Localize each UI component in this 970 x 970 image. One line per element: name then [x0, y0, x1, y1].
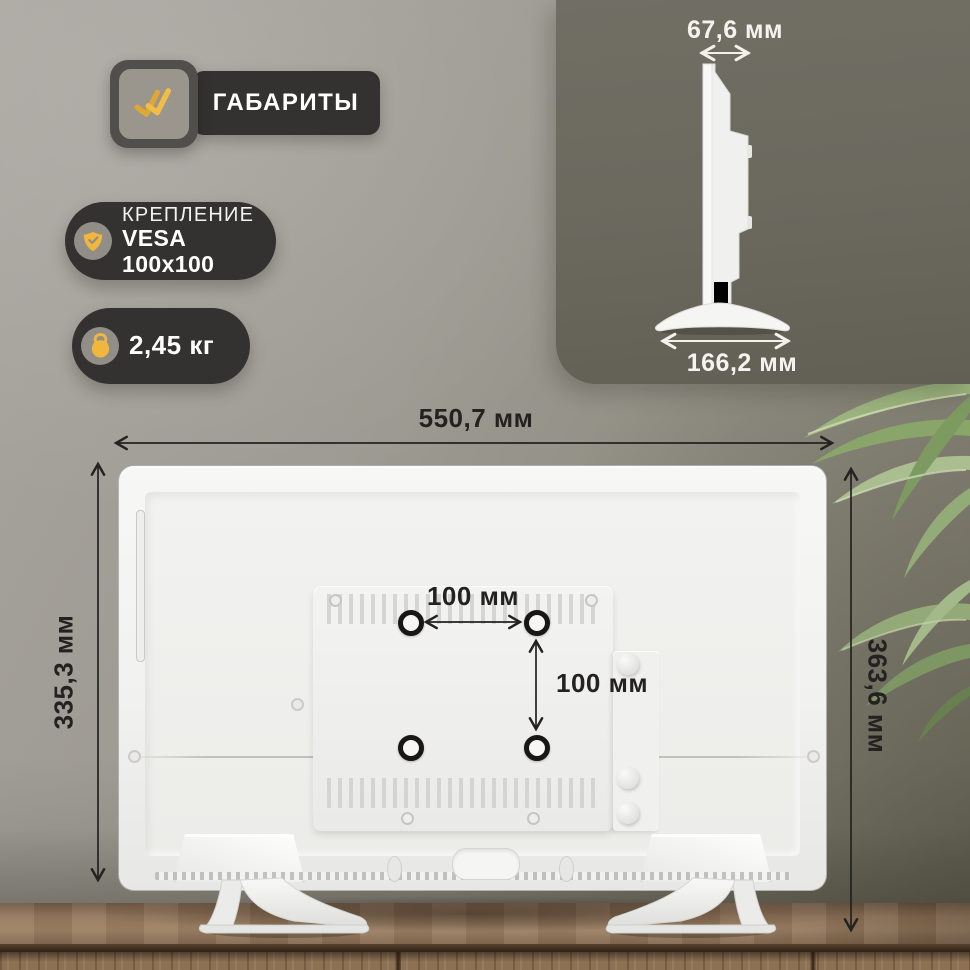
- height-dimension-label: 335,3 мм: [49, 615, 80, 730]
- mount-value: VESA 100x100: [122, 226, 276, 278]
- double-check-icon: [119, 69, 189, 139]
- vesa-badge: КРЕПЛЕНИЕ VESA 100x100: [65, 202, 276, 280]
- weight-badge: 2,45 кг: [72, 308, 250, 384]
- weight-value: 2,45 кг: [129, 331, 214, 360]
- dimensions-badge-label: ГАБАРИТЫ: [213, 89, 360, 117]
- dimensions-badge-labelbox: ГАБАРИТЫ: [192, 71, 380, 135]
- shield-check-icon: [74, 222, 112, 260]
- height-with-stand-dimension-label: 363,6 мм: [862, 639, 893, 754]
- tv-dimensions-infographic: 67,6 мм 166,2 мм ГАБАРИТЫ: [0, 0, 970, 970]
- mount-title: КРЕПЛЕНИЕ: [122, 204, 276, 226]
- tv-foot-right: [606, 878, 775, 938]
- tv-foot-left: [199, 878, 368, 938]
- dimensions-badge-icon-frame: [110, 60, 198, 148]
- vesa-width-label: 100 мм: [427, 581, 519, 612]
- kettlebell-icon: [81, 327, 119, 365]
- width-dimension-label: 550,7 мм: [419, 403, 534, 434]
- vesa-height-label: 100 мм: [556, 668, 648, 699]
